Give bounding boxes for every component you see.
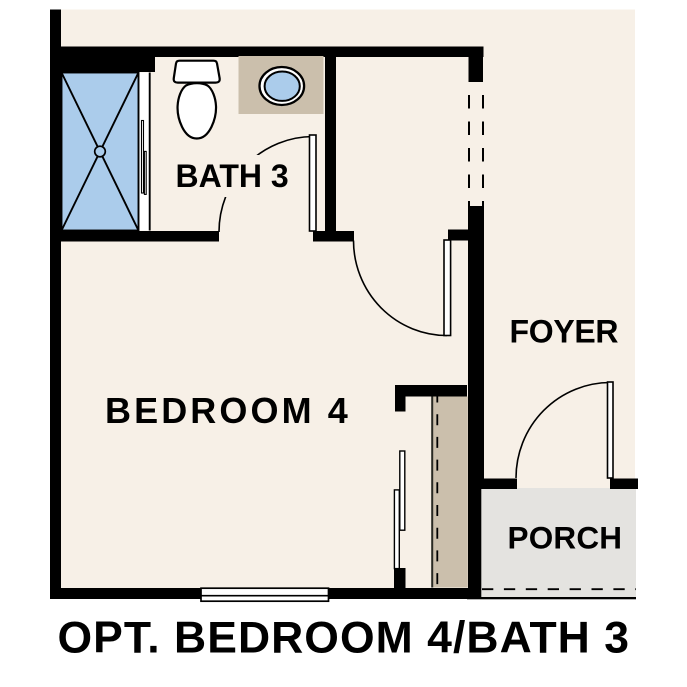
svg-text:PORCH: PORCH (508, 520, 623, 556)
svg-text:FOYER: FOYER (510, 314, 619, 350)
svg-text:BATH 3: BATH 3 (176, 158, 289, 194)
svg-text:BEDROOM 4: BEDROOM 4 (105, 390, 351, 431)
svg-text:OPT. BEDROOM 4/BATH 3: OPT. BEDROOM 4/BATH 3 (58, 614, 631, 663)
